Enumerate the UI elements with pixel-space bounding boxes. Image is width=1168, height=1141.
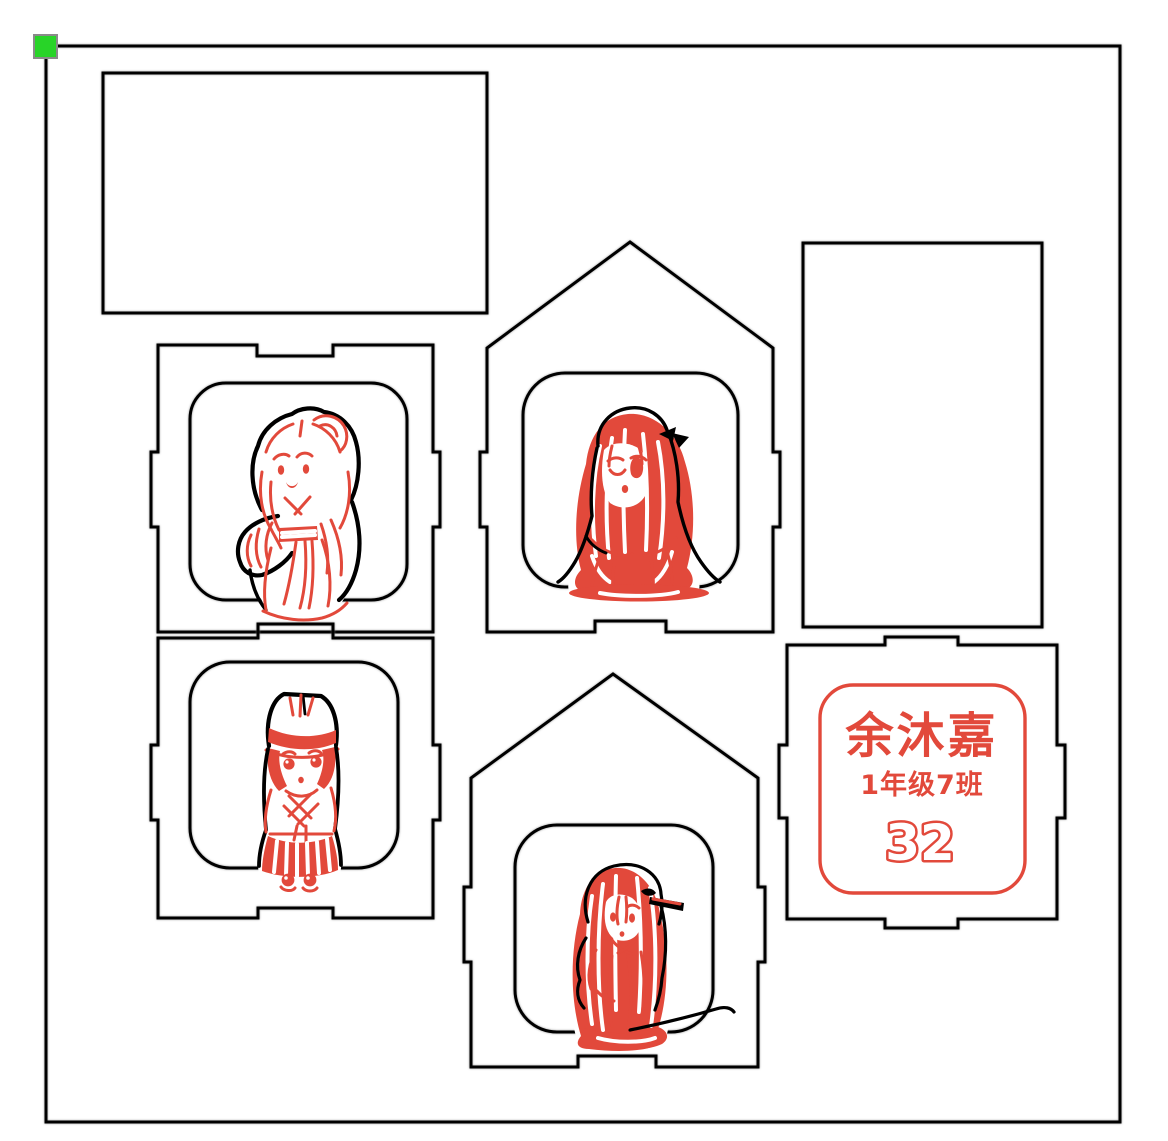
- hair-part-line: [300, 421, 302, 436]
- piece-house-lower[interactable]: [464, 674, 765, 1067]
- number-text[interactable]: 32: [885, 814, 955, 872]
- mouth: [298, 777, 304, 783]
- piece-blank-panel-top[interactable]: [103, 73, 487, 313]
- piece-square-frame-lower[interactable]: [151, 624, 440, 918]
- mouth: [620, 931, 625, 937]
- sash-stripe: [282, 531, 315, 533]
- boot: [282, 874, 295, 887]
- skirt-pleat: [307, 843, 308, 875]
- piece-square-frame-upper[interactable]: [151, 345, 440, 632]
- center-bang: [626, 897, 627, 922]
- boot: [304, 874, 317, 887]
- design-canvas-viewport: 余沐嘉 1年级7班 32: [0, 0, 1168, 1141]
- eye: [310, 756, 321, 767]
- boot-glint: [284, 876, 288, 880]
- eye: [303, 464, 309, 474]
- eye-glint: [285, 760, 288, 763]
- origin-handle-icon[interactable]: [34, 35, 57, 58]
- hem-puddle: [569, 585, 709, 602]
- boot-glint: [306, 876, 310, 880]
- hat-seam: [303, 695, 305, 714]
- engraving-longhair-girl-wink[interactable]: [558, 408, 720, 602]
- engraving-longhair-girl-hairpin[interactable]: [569, 862, 735, 1053]
- eye: [610, 912, 616, 921]
- piece-house-upper[interactable]: [480, 242, 780, 632]
- engraving-hanfu-girl[interactable]: [235, 408, 359, 622]
- class-text[interactable]: 1年级7班: [860, 769, 984, 801]
- hat-seam: [300, 695, 301, 716]
- sash-stripe: [282, 535, 315, 537]
- cut-outline[interactable]: [803, 243, 1042, 627]
- eye: [278, 465, 284, 475]
- skirt-pleat: [317, 842, 319, 873]
- eye: [283, 758, 294, 769]
- eye-glint: [312, 758, 315, 761]
- skirt-pleat: [286, 843, 287, 875]
- piece-blank-panel-right[interactable]: [803, 243, 1042, 627]
- laser-design-canvas[interactable]: 余沐嘉 1年级7班 32: [0, 0, 1168, 1141]
- eye: [629, 913, 635, 922]
- mouth: [622, 485, 628, 493]
- cut-outline[interactable]: [103, 73, 487, 313]
- piece-name-tag[interactable]: 余沐嘉 1年级7班 32: [779, 637, 1065, 928]
- name-text[interactable]: 余沐嘉: [844, 708, 998, 764]
- bow-knot: [668, 433, 673, 438]
- engraving-hat-girl[interactable]: [258, 690, 342, 892]
